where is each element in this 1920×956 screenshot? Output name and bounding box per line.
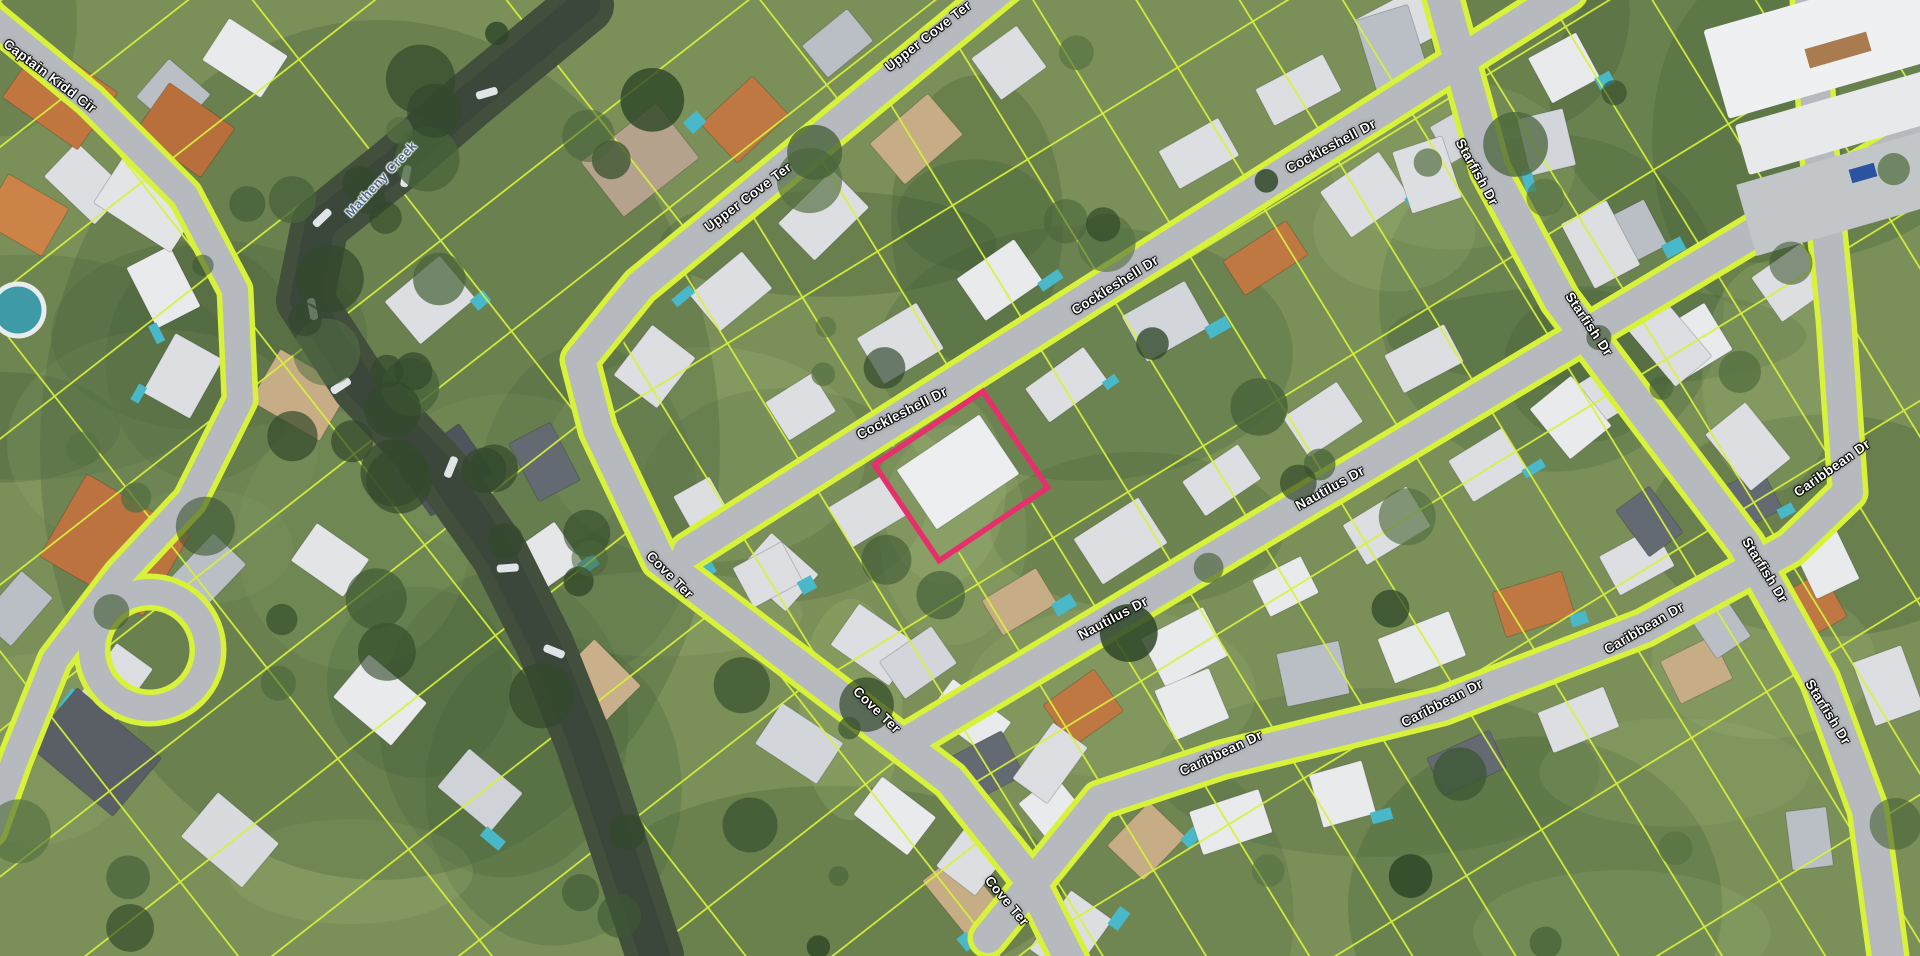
map-imagery xyxy=(0,0,1920,956)
satellite-map[interactable]: Captain Kidd CirMatheny CreekUpper Cove … xyxy=(0,0,1920,956)
round-pool xyxy=(0,284,44,336)
